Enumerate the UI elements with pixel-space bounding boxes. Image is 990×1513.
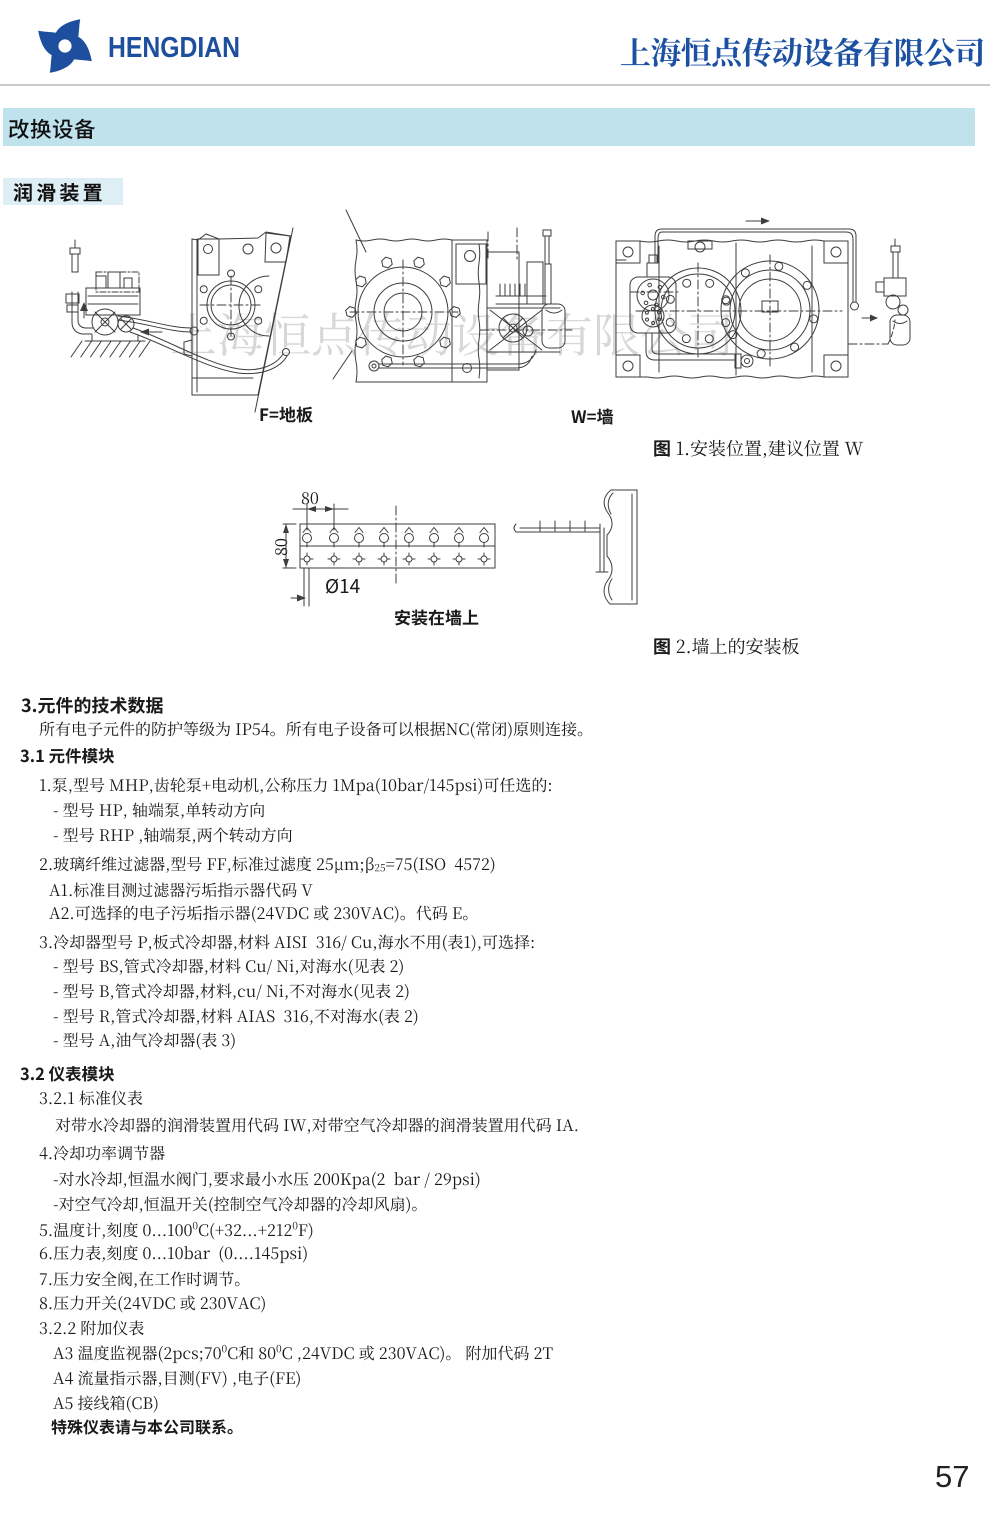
- svg-text:HENGDIAN: HENGDIAN: [108, 32, 240, 64]
- svg-text:57: 57: [935, 1459, 969, 1494]
